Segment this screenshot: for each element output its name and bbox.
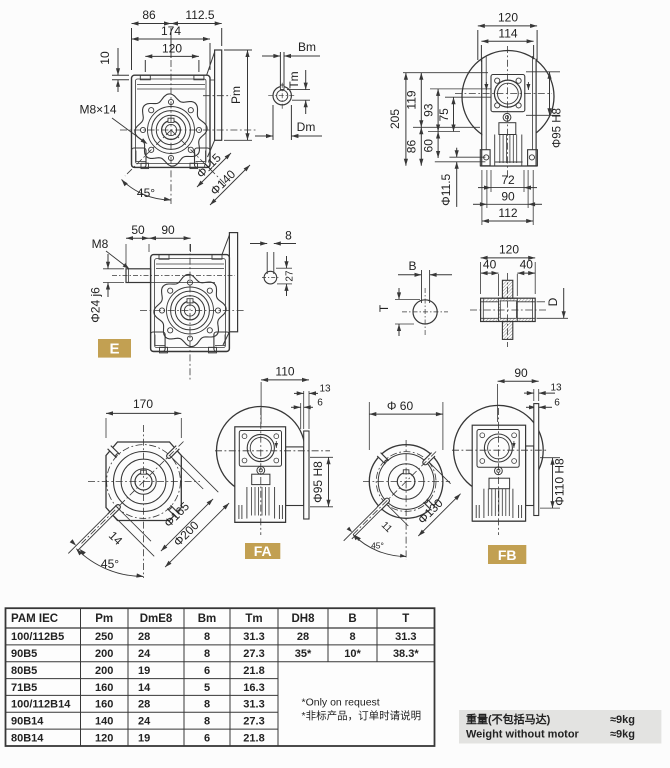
svg-text:B: B: [348, 613, 356, 625]
svg-text:45°: 45°: [371, 541, 384, 551]
svg-text:21.8: 21.8: [243, 665, 264, 677]
svg-text:86: 86: [142, 8, 156, 22]
svg-text:35*: 35*: [295, 648, 312, 660]
svg-text:8: 8: [349, 631, 355, 643]
svg-text:31.3: 31.3: [395, 631, 416, 643]
svg-text:Pm: Pm: [95, 613, 113, 625]
svg-text:Tm: Tm: [245, 613, 262, 625]
svg-text:≈9kg: ≈9kg: [610, 714, 635, 726]
svg-text:*非标产品，订单时请说明: *非标产品，订单时请说明: [302, 709, 422, 722]
svg-text:Bm: Bm: [198, 613, 217, 625]
svg-text:FA: FA: [254, 543, 272, 559]
svg-text:19: 19: [138, 665, 150, 677]
svg-text:Φ110 H8: Φ110 H8: [553, 458, 567, 506]
svg-text:Bm: Bm: [298, 40, 316, 54]
svg-text:28: 28: [138, 631, 150, 643]
svg-text:D: D: [546, 297, 560, 306]
svg-text:160: 160: [95, 699, 113, 711]
svg-text:120: 120: [498, 11, 518, 25]
svg-text:120: 120: [162, 42, 182, 56]
svg-text:120: 120: [95, 732, 113, 744]
svg-text:Φ24 j6: Φ24 j6: [88, 287, 102, 323]
svg-text:8: 8: [204, 631, 210, 643]
svg-text:14: 14: [106, 528, 126, 548]
svg-text:14: 14: [138, 682, 151, 694]
svg-text:21.8: 21.8: [243, 732, 264, 744]
svg-text:B: B: [408, 259, 416, 273]
svg-text:160: 160: [95, 682, 113, 694]
svg-text:40: 40: [520, 258, 534, 272]
svg-text:38.3*: 38.3*: [393, 648, 419, 660]
svg-text:80B5: 80B5: [11, 665, 37, 677]
svg-text:6: 6: [204, 665, 210, 677]
svg-text:8: 8: [204, 716, 210, 728]
svg-text:6: 6: [204, 732, 210, 744]
svg-text:28: 28: [297, 631, 309, 643]
svg-text:60: 60: [421, 139, 435, 153]
svg-text:13: 13: [319, 384, 331, 395]
svg-text:114: 114: [498, 27, 517, 41]
svg-text:Φ95 H8: Φ95 H8: [552, 108, 564, 148]
svg-text:T: T: [377, 304, 391, 312]
svg-text:Tm: Tm: [287, 71, 301, 88]
svg-text:40: 40: [483, 258, 497, 272]
svg-text:FB: FB: [498, 547, 517, 563]
svg-text:90: 90: [161, 223, 175, 237]
svg-text:8: 8: [285, 229, 292, 243]
svg-text:重量(不包括马达): 重量(不包括马达): [466, 712, 551, 726]
svg-text:170: 170: [133, 397, 153, 411]
svg-text:100/112B14: 100/112B14: [11, 699, 71, 711]
svg-text:Φ 60: Φ 60: [387, 399, 414, 413]
svg-text:Φ95 H8: Φ95 H8: [311, 461, 325, 503]
svg-text:27.3: 27.3: [243, 648, 264, 660]
svg-text:90: 90: [514, 366, 528, 380]
svg-text:8: 8: [204, 699, 210, 711]
svg-text:93: 93: [421, 103, 435, 117]
svg-text:112.5: 112.5: [185, 8, 214, 22]
svg-text:205: 205: [388, 109, 402, 129]
svg-text:13: 13: [550, 383, 562, 394]
svg-text:75: 75: [437, 108, 451, 122]
svg-text:50: 50: [131, 223, 145, 237]
svg-text:M8: M8: [92, 237, 109, 251]
svg-text:31.3: 31.3: [243, 699, 264, 711]
svg-text:80B14: 80B14: [11, 732, 44, 744]
svg-text:10: 10: [98, 51, 112, 65]
svg-text:31.3: 31.3: [243, 631, 264, 643]
svg-text:24: 24: [138, 648, 151, 660]
svg-text:119: 119: [405, 90, 419, 109]
svg-text:200: 200: [95, 665, 113, 677]
svg-text:120: 120: [499, 243, 519, 257]
svg-text:112: 112: [498, 206, 517, 220]
svg-text:28: 28: [138, 699, 150, 711]
svg-text:Pm: Pm: [229, 86, 243, 104]
svg-text:PAM IEC: PAM IEC: [11, 613, 58, 625]
svg-text:250: 250: [95, 631, 113, 643]
svg-text:90B14: 90B14: [11, 716, 44, 728]
svg-text:24: 24: [138, 716, 151, 728]
svg-text:90B5: 90B5: [11, 648, 37, 660]
svg-text:Φ130: Φ130: [415, 496, 446, 527]
svg-text:Dm: Dm: [297, 120, 316, 134]
svg-text:8: 8: [204, 648, 210, 660]
svg-text:6: 6: [554, 398, 560, 409]
svg-text:5: 5: [204, 682, 210, 694]
svg-text:110: 110: [275, 365, 294, 379]
svg-text:72: 72: [501, 173, 515, 187]
svg-text:*Only on request: *Only on request: [302, 697, 380, 709]
svg-text:27.3: 27.3: [243, 716, 264, 728]
svg-text:140: 140: [95, 716, 113, 728]
svg-text:M8×14: M8×14: [79, 103, 116, 117]
svg-text:E: E: [109, 341, 119, 358]
svg-text:100/112B5: 100/112B5: [11, 631, 64, 643]
svg-text:16.3: 16.3: [243, 682, 264, 694]
svg-text:27: 27: [284, 270, 295, 282]
svg-text:71B5: 71B5: [11, 682, 37, 694]
svg-text:19: 19: [138, 732, 150, 744]
svg-text:45°: 45°: [101, 557, 119, 571]
svg-text:86: 86: [405, 140, 419, 154]
svg-text:Φ11.5: Φ11.5: [439, 173, 453, 205]
svg-text:≈9kg: ≈9kg: [610, 729, 635, 741]
svg-text:DmE8: DmE8: [140, 613, 173, 625]
svg-text:11: 11: [379, 520, 394, 535]
svg-text:DH8: DH8: [291, 613, 315, 625]
svg-text:45°: 45°: [137, 186, 155, 200]
svg-text:10*: 10*: [344, 648, 361, 660]
svg-text:T: T: [402, 613, 409, 625]
svg-text:90: 90: [501, 190, 515, 204]
svg-text:6: 6: [317, 398, 323, 409]
svg-text:174: 174: [161, 24, 181, 38]
svg-text:Weight without motor: Weight without motor: [466, 729, 580, 741]
svg-text:200: 200: [95, 648, 113, 660]
